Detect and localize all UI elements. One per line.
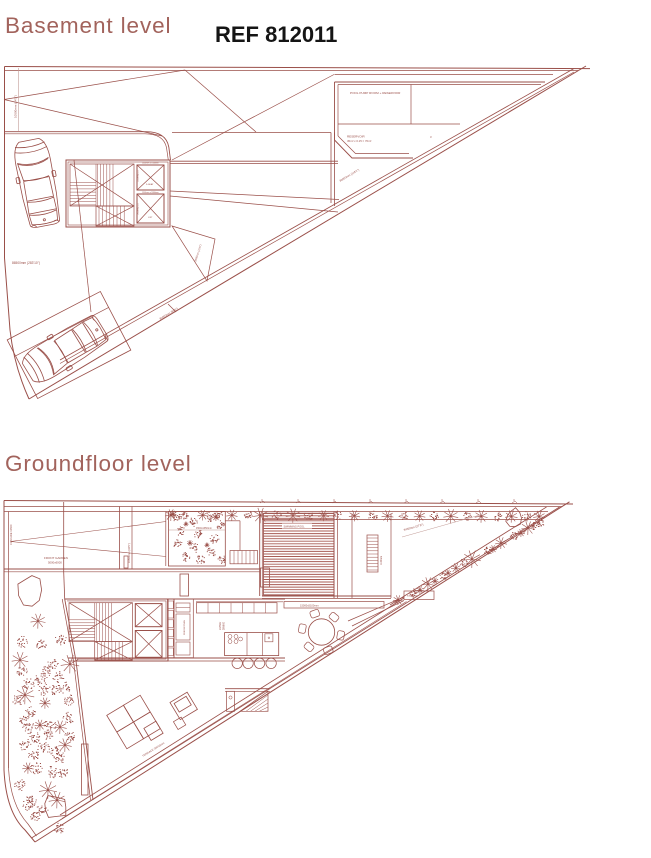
svg-text:REF 812011: REF 812011 — [215, 22, 337, 47]
svg-text:DINING: DINING — [224, 622, 226, 630]
svg-text:10500mm (34'5"): 10500mm (34'5") — [127, 543, 131, 563]
svg-text:36000mm (118'1"): 36000mm (118'1") — [338, 168, 360, 183]
svg-text:8450x2000: 8450x2000 — [407, 596, 419, 598]
svg-text:FRIDGE/OVEN: FRIDGE/OVEN — [184, 620, 186, 635]
svg-text:3: 3 — [430, 135, 432, 139]
svg-text:RESERVOIR: RESERVOIR — [347, 135, 365, 139]
svg-text:15000x5100mm: 15000x5100mm — [300, 604, 319, 608]
svg-text:Groundfloor level: Groundfloor level — [5, 451, 192, 476]
svg-text:Basement level: Basement level — [5, 13, 171, 38]
svg-text:8450mm (27'8"): 8450mm (27'8") — [403, 522, 424, 531]
svg-text:1500mm x 1500mm: 1500mm x 1500mm — [142, 163, 159, 165]
svg-text:30000mm (98'5"): 30000mm (98'5") — [158, 306, 178, 320]
svg-text:LIFT: LIFT — [148, 217, 153, 219]
svg-text:CASCADE 10500: CASCADE 10500 — [9, 524, 13, 545]
svg-text:1800mm(5'11"): 1800mm(5'11") — [138, 203, 140, 215]
svg-text:LIVING/: LIVING/ — [220, 621, 222, 630]
svg-text:POOL PUMP ROOM + RESERVOIR: POOL PUMP ROOM + RESERVOIR — [350, 91, 401, 95]
svg-text:3-SEAT: 3-SEAT — [146, 183, 154, 186]
svg-text:1500mm x 1800mm: 1500mm x 1800mm — [142, 192, 159, 194]
svg-text:86500mm (283’10"): 86500mm (283’10") — [12, 261, 40, 265]
svg-text:45m³ x 0.15 = 70m³: 45m³ x 0.15 = 70m³ — [347, 139, 371, 143]
svg-text:5000x6000: 5000x6000 — [48, 561, 62, 565]
svg-text:1100mm: 1100mm — [380, 556, 383, 565]
svg-text:4500x1350mm: 4500x1350mm — [196, 527, 212, 530]
svg-text:3500mm (11'6"): 3500mm (11'6") — [193, 244, 202, 263]
svg-text:FRONT GARDEN: FRONT GARDEN — [44, 556, 68, 560]
svg-text:SWIMMING POOL: SWIMMING POOL — [284, 526, 306, 529]
svg-text:10500mm (34'5"): 10500mm (34'5") — [14, 95, 18, 118]
svg-text:1500mm(4'11"): 1500mm(4'11") — [138, 170, 140, 182]
